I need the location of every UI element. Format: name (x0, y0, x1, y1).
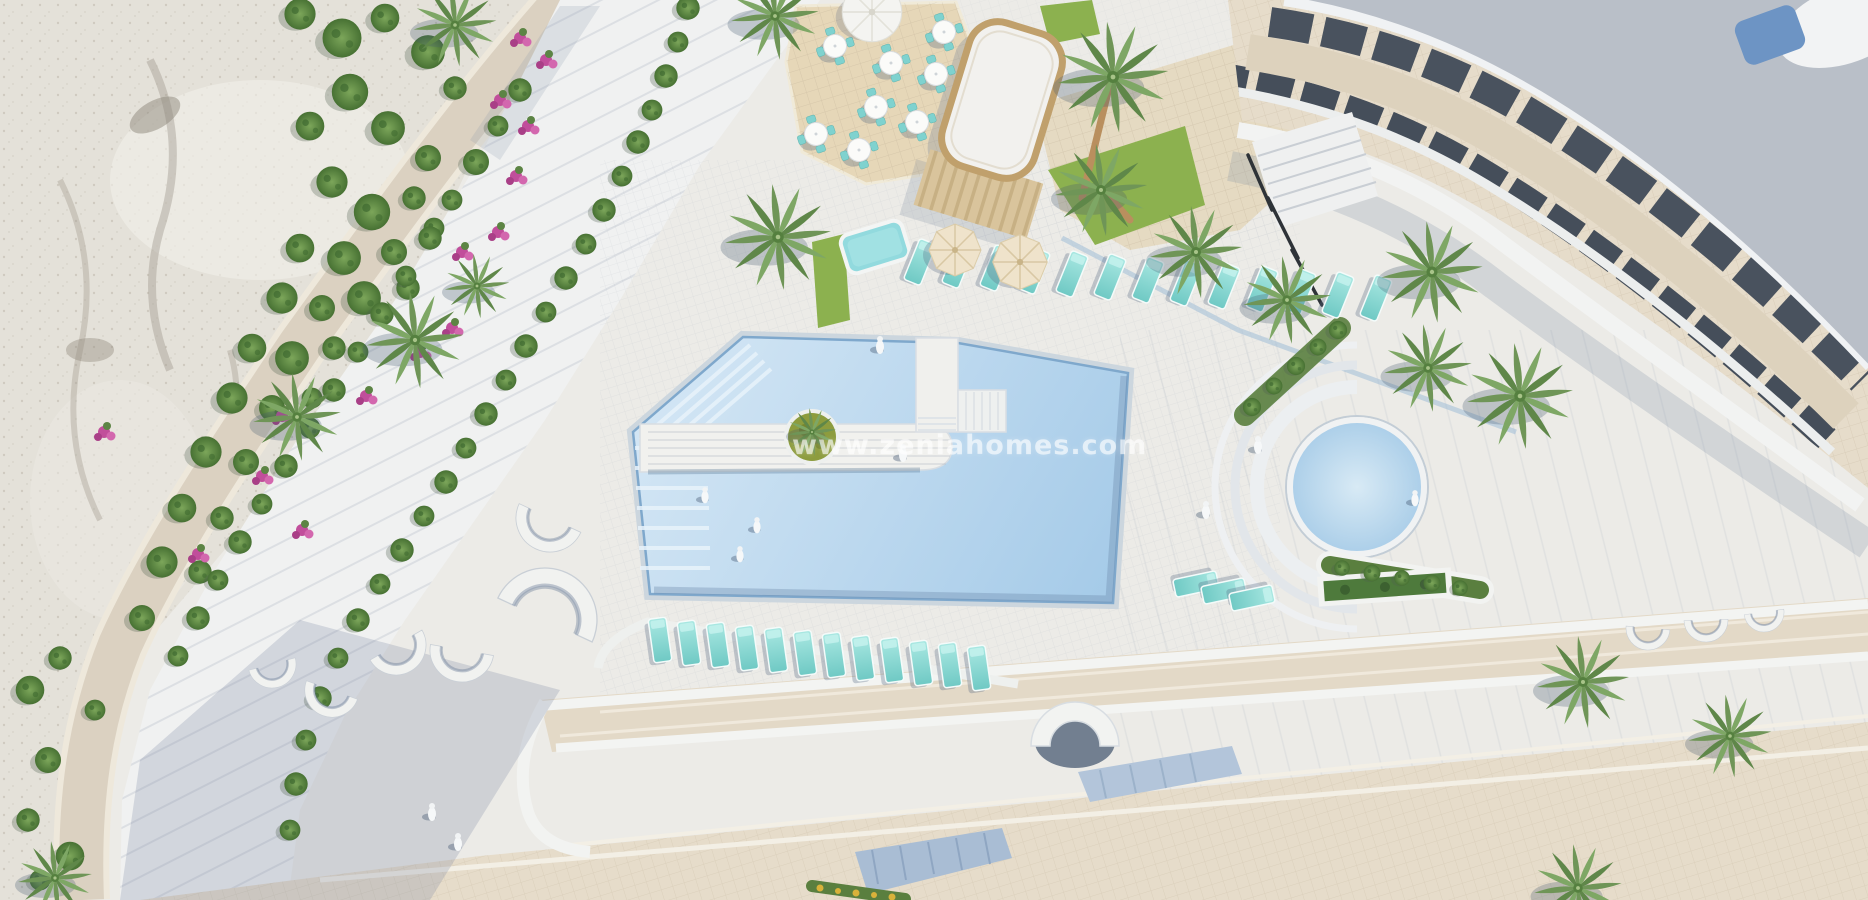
aerial-render: www.zeniahomes.com (0, 0, 1868, 900)
